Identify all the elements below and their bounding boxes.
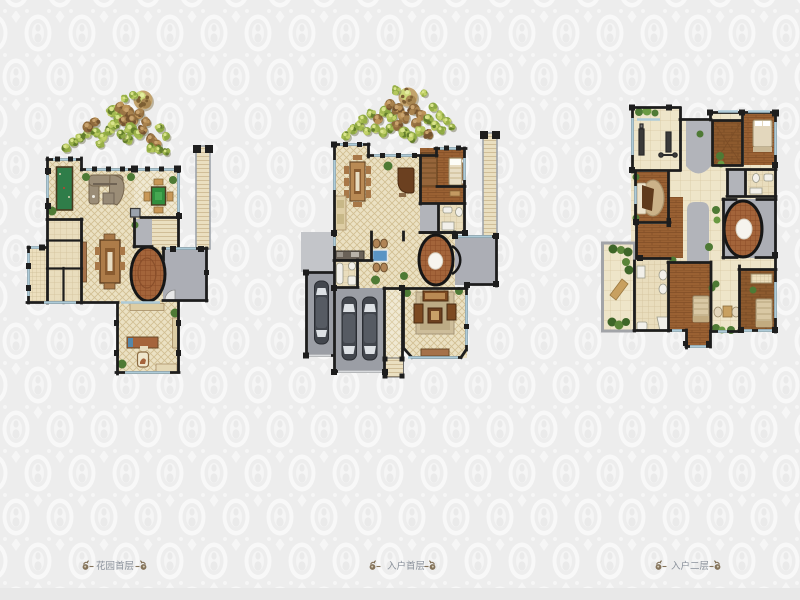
svg-text:花园首层: 花园首层 bbox=[96, 560, 134, 572]
svg-text:入户首层: 入户首层 bbox=[387, 560, 425, 572]
svg-text:入户二层: 入户二层 bbox=[671, 560, 709, 572]
